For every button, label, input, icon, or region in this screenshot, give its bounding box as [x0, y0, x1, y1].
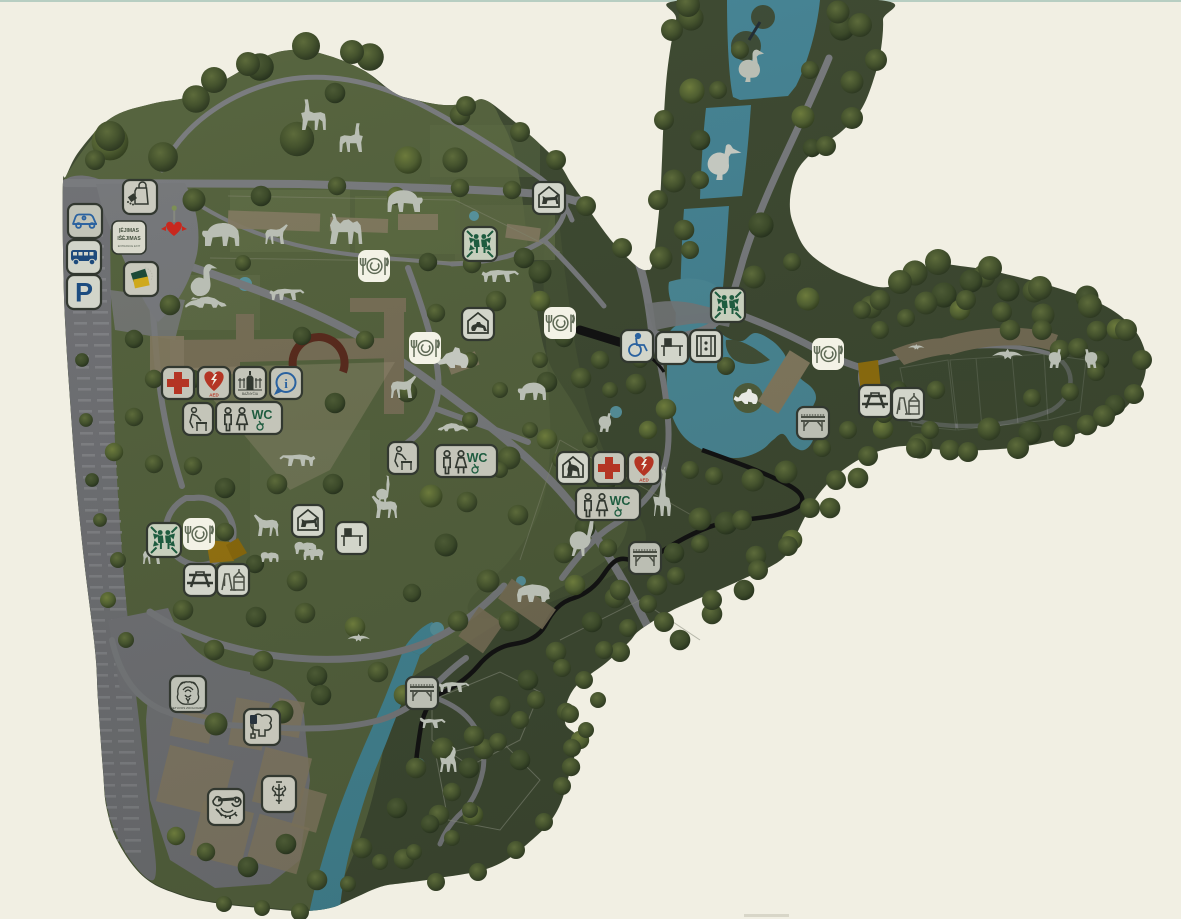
- svg-text:IŠĖJIMAS: IŠĖJIMAS: [117, 234, 141, 242]
- svg-text:BAŽNYČIA: BAŽNYČIA: [242, 391, 259, 396]
- svg-text:WC: WC: [610, 494, 631, 508]
- svg-text:ĮĖJIMAS: ĮĖJIMAS: [119, 227, 140, 234]
- svg-text:WC: WC: [467, 451, 488, 465]
- svg-text:AED: AED: [209, 393, 219, 398]
- svg-text:WC: WC: [252, 408, 273, 422]
- svg-text:ENTRANCE EXIT: ENTRANCE EXIT: [118, 244, 141, 248]
- svg-text:LIETUVOS ZOOLOGIJOS: LIETUVOS ZOOLOGIJOS: [170, 706, 205, 710]
- svg-text:i: i: [284, 376, 288, 391]
- svg-text:P: P: [75, 278, 93, 308]
- svg-text:AED: AED: [639, 478, 649, 483]
